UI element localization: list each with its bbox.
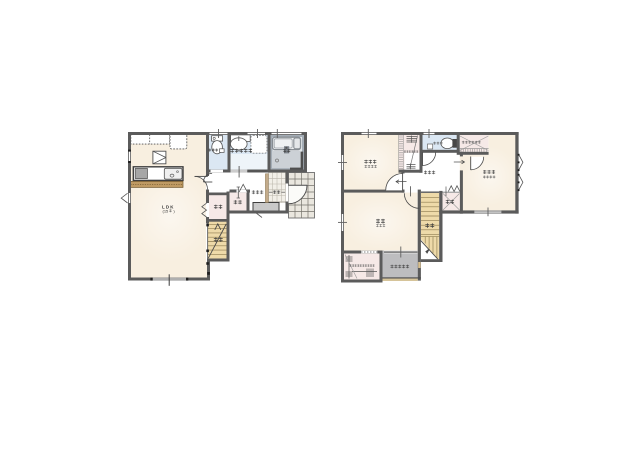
svg-text:(15: (15: [163, 208, 170, 213]
